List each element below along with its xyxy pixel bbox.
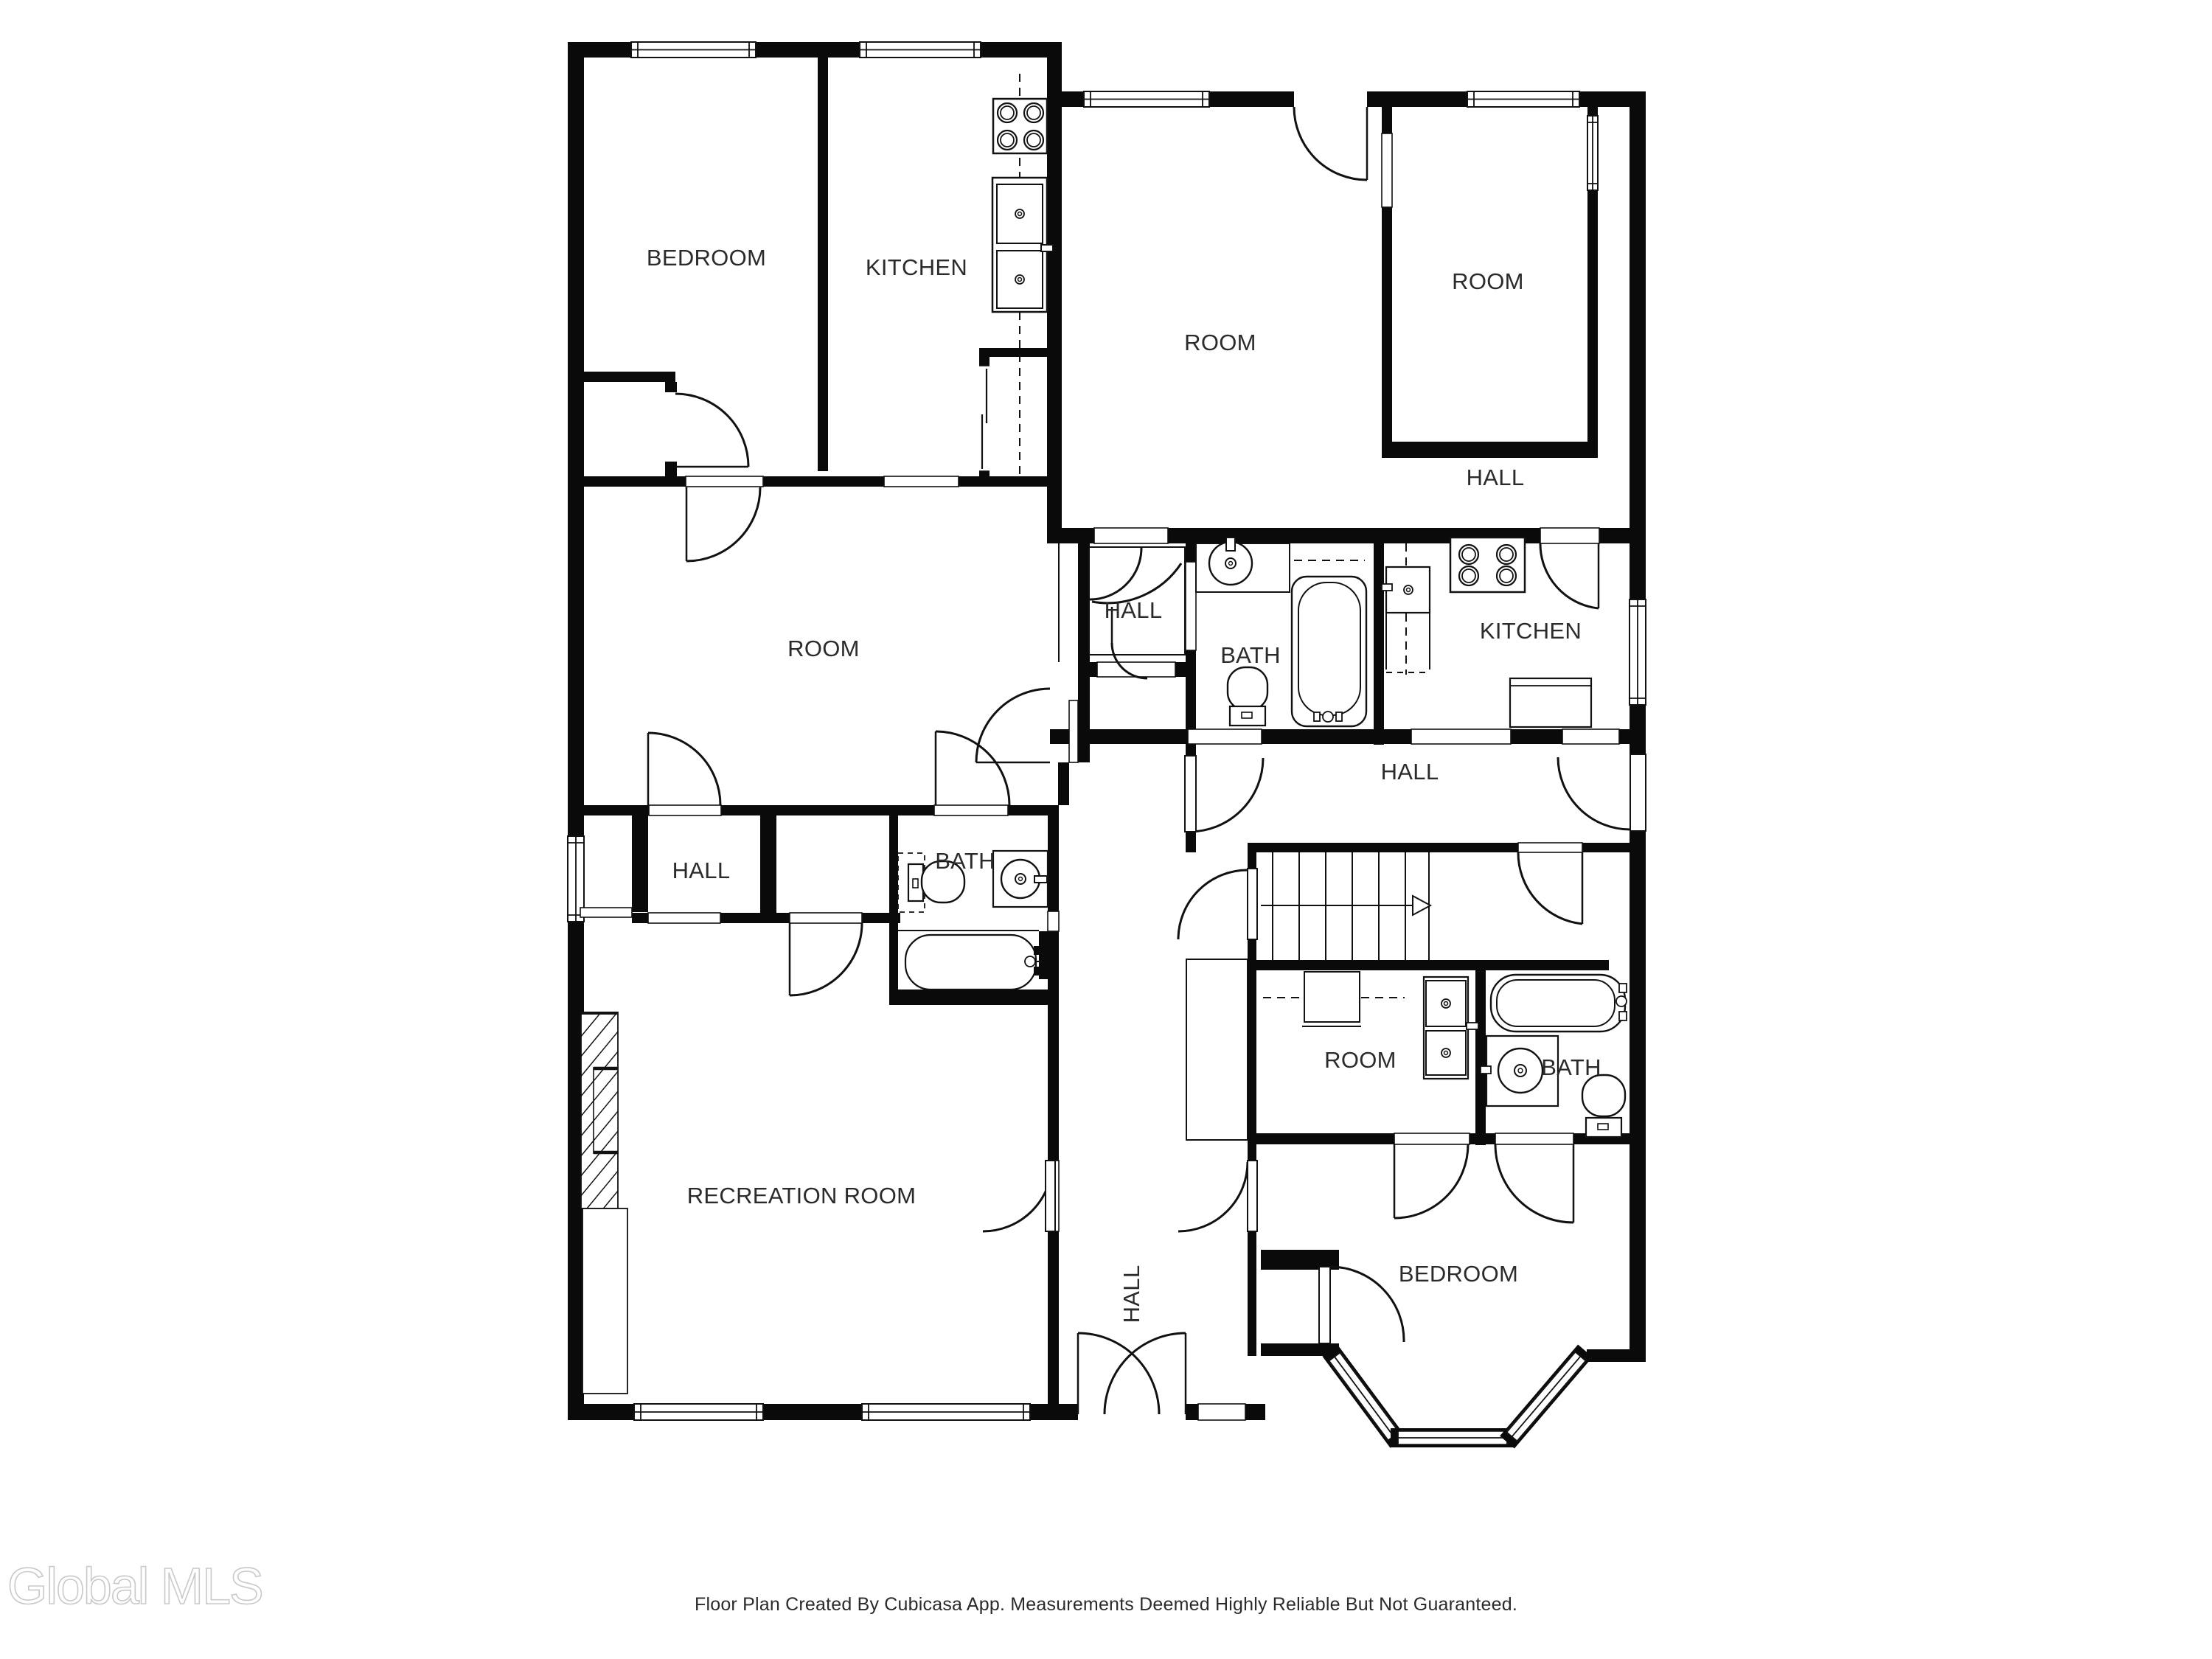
svg-text:BATH: BATH [1541,1054,1601,1080]
svg-text:ROOM: ROOM [1452,268,1524,294]
svg-text:KITCHEN: KITCHEN [866,254,967,280]
svg-text:RECREATION ROOM: RECREATION ROOM [687,1183,917,1208]
svg-text:Global MLS: Global MLS [7,1557,262,1615]
svg-text:ROOM: ROOM [787,636,860,661]
svg-text:ROOM: ROOM [1324,1047,1397,1073]
svg-text:HALL: HALL [1119,1265,1144,1324]
svg-text:BATH: BATH [935,848,995,874]
svg-text:BEDROOM: BEDROOM [647,245,766,271]
svg-text:HALL: HALL [672,858,731,883]
svg-text:HALL: HALL [1381,759,1439,785]
svg-text:Floor Plan Created By Cubicasa: Floor Plan Created By Cubicasa App. Meas… [695,1594,1517,1615]
svg-text:BEDROOM: BEDROOM [1399,1261,1518,1287]
svg-text:KITCHEN: KITCHEN [1480,618,1582,644]
svg-text:HALL: HALL [1467,465,1525,490]
svg-text:ROOM: ROOM [1184,330,1256,355]
svg-text:HALL: HALL [1105,597,1163,623]
svg-text:BATH: BATH [1220,642,1281,668]
